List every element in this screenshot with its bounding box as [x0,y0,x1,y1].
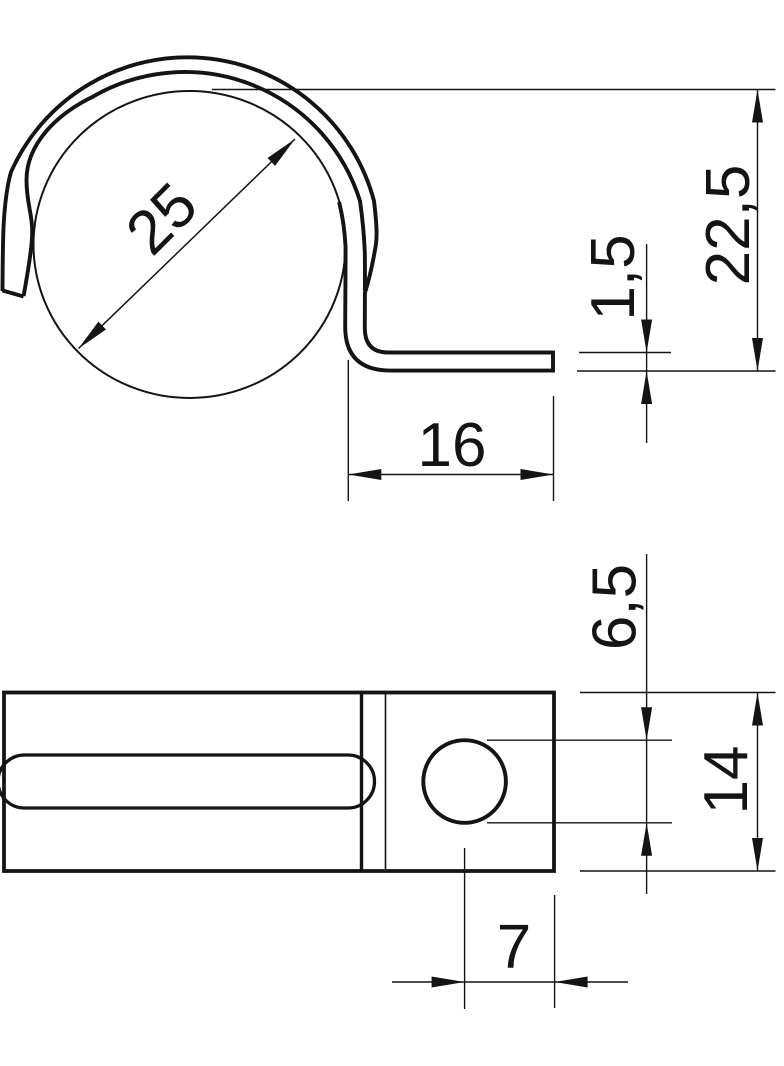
svg-text:16: 16 [418,411,487,480]
svg-text:22,5: 22,5 [694,165,763,286]
svg-text:6,5: 6,5 [581,564,650,650]
svg-text:14: 14 [692,746,761,815]
svg-text:1,5: 1,5 [579,234,648,320]
svg-text:7: 7 [497,913,531,982]
